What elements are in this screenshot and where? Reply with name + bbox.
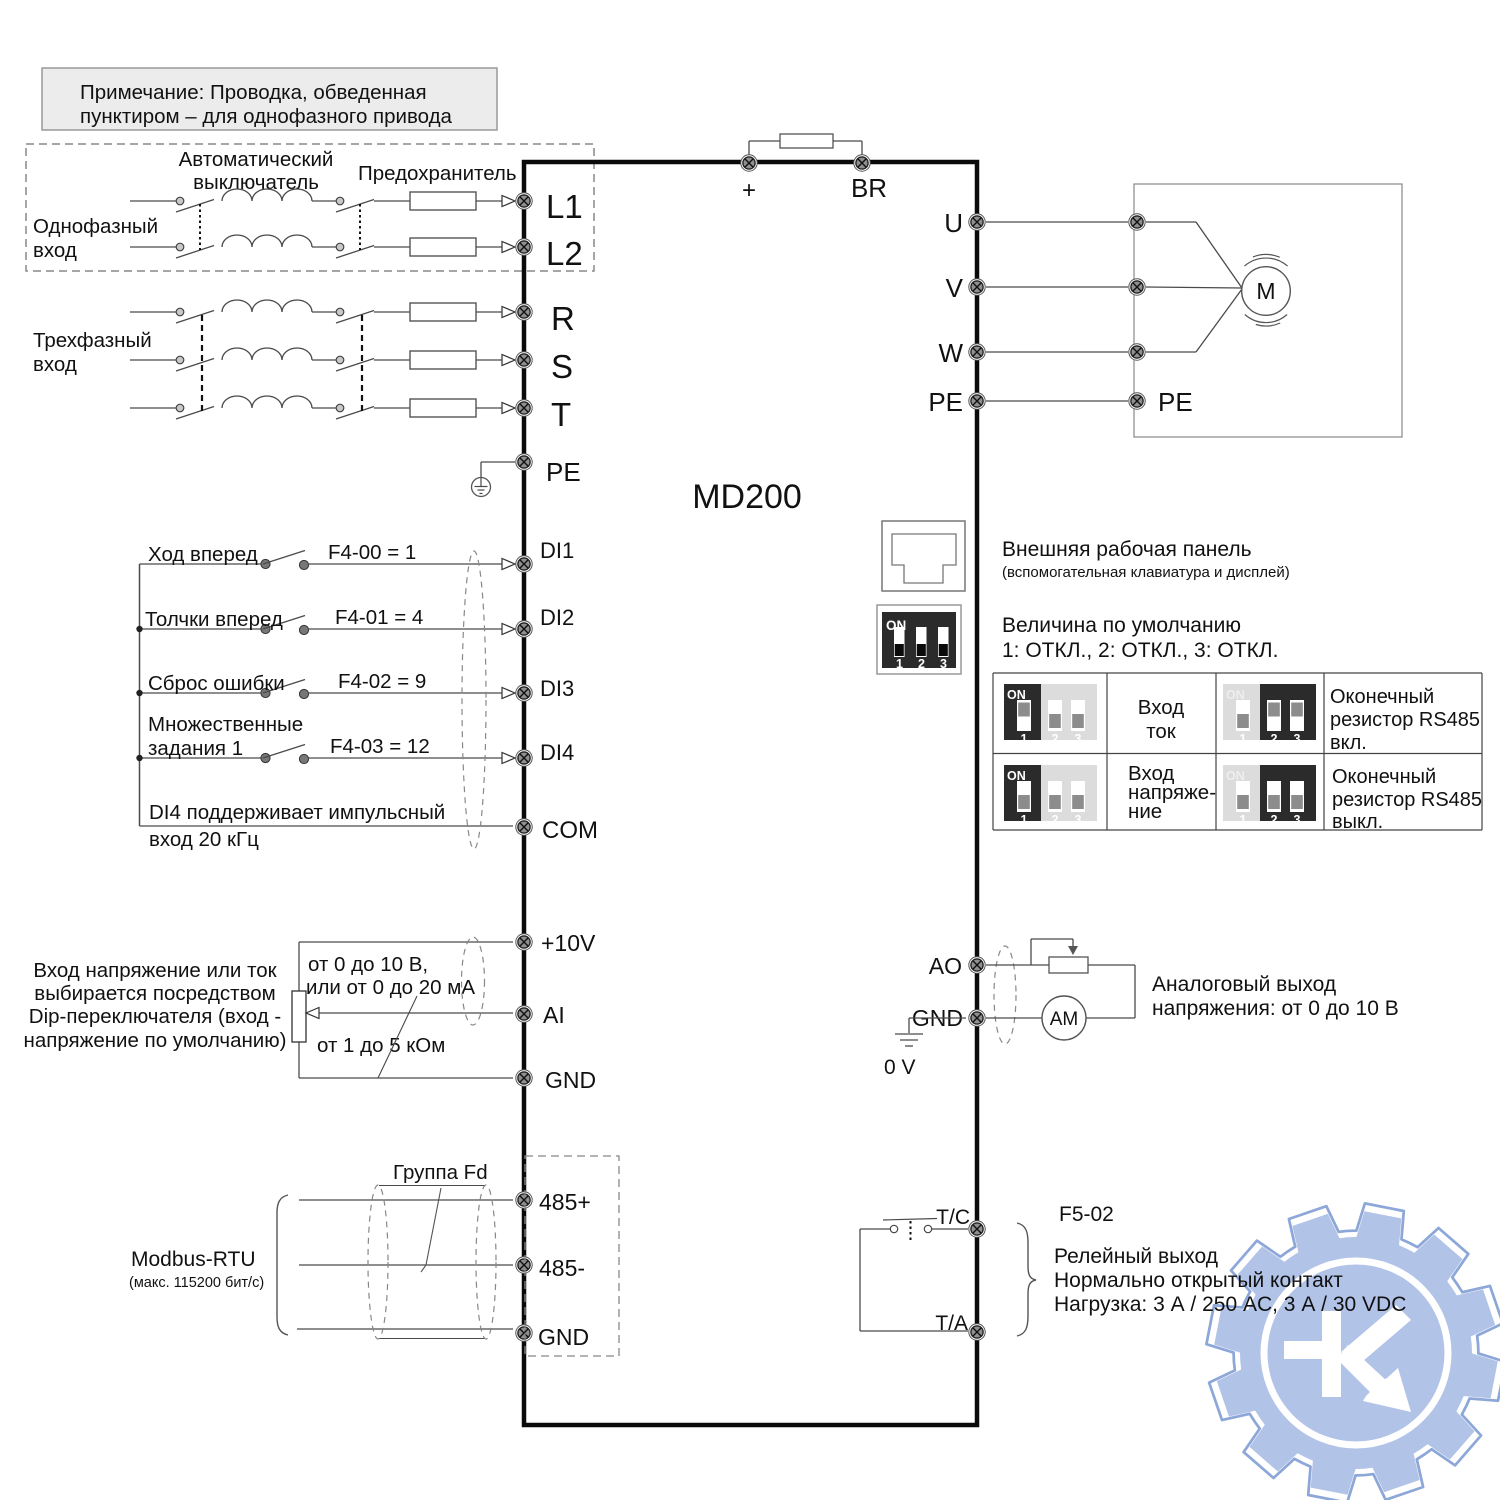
svg-text:2: 2 [918,657,925,671]
svg-text:DI1: DI1 [540,538,574,563]
svg-text:Аналоговый выход: Аналоговый выход [1152,973,1336,996]
svg-text:напряжение по умолчанию): напряжение по умолчанию) [24,1029,287,1052]
svg-text:GND: GND [538,1324,589,1350]
svg-text:PE: PE [1158,387,1193,417]
svg-text:Множественные: Множественные [148,713,303,736]
svg-text:+: + [742,177,756,204]
svg-text:Вход напряжение или ток: Вход напряжение или ток [33,959,277,982]
svg-text:Нормально открытый контакт: Нормально открытый контакт [1054,1269,1343,1292]
svg-text:напряжения: от 0 до 10 В: напряжения: от 0 до 10 В [1152,997,1399,1020]
svg-text:W: W [938,338,963,368]
svg-text:1: ОТКЛ., 2: ОТКЛ., 3: ОТКЛ.: 1: ОТКЛ., 2: ОТКЛ., 3: ОТКЛ. [1002,639,1278,662]
svg-text:Примечание: Проводка, обведенн: Примечание: Проводка, обведенная [80,81,427,104]
svg-text:Оконечный: Оконечный [1330,686,1434,708]
svg-text:M: M [1256,278,1275,304]
svg-text:PE: PE [546,457,581,487]
svg-text:0 V: 0 V [884,1056,916,1079]
svg-text:3: 3 [1294,813,1301,827]
svg-text:MD200: MD200 [692,478,802,516]
svg-text:T/C: T/C [936,1206,970,1229]
svg-text:2: 2 [1271,813,1278,827]
svg-text:от 0 до 10 В,: от 0 до 10 В, [308,953,428,976]
svg-text:T: T [551,396,571,433]
svg-text:3: 3 [1075,813,1082,827]
svg-text:DI3: DI3 [540,676,574,701]
svg-text:DI4 поддерживает импульсный: DI4 поддерживает импульсный [149,801,445,824]
svg-text:AI: AI [543,1002,565,1028]
svg-text:BR: BR [851,173,887,203]
svg-text:DI2: DI2 [540,605,574,630]
svg-text:1: 1 [1240,813,1247,827]
svg-text:DI4: DI4 [540,740,574,765]
svg-text:Внешняя рабочая панель: Внешняя рабочая панель [1002,538,1252,561]
svg-text:выключатель: выключатель [193,171,319,194]
svg-text:U: U [944,208,963,238]
svg-text:Оконечный: Оконечный [1332,766,1436,788]
svg-text:Однофазный: Однофазный [33,215,158,238]
svg-text:резистор RS485: резистор RS485 [1330,709,1480,731]
svg-text:Величина по умолчанию: Величина по умолчанию [1002,614,1241,637]
svg-text:ние: ние [1128,800,1162,823]
svg-text:3: 3 [940,657,947,671]
svg-text:Релейный выход: Релейный выход [1054,1245,1218,1268]
svg-text:V: V [946,273,964,303]
svg-text:ON: ON [1226,688,1245,702]
svg-text:2: 2 [1052,813,1059,827]
svg-text:ON: ON [1007,769,1026,783]
svg-text:AO: AO [929,953,962,979]
svg-text:PE: PE [928,387,963,417]
svg-text:T/A: T/A [935,1312,968,1335]
svg-text:Группа Fd: Группа Fd [393,1161,488,1184]
svg-text:выбирается посредством: выбирается посредством [34,982,275,1005]
svg-text:F4-00 = 1: F4-00 = 1 [328,541,416,564]
svg-text:F4-02 = 9: F4-02 = 9 [338,670,426,693]
svg-text:Предохранитель: Предохранитель [358,162,517,185]
svg-text:вход: вход [33,353,77,376]
svg-text:Dip-переключателя (вход -: Dip-переключателя (вход - [29,1005,281,1028]
svg-text:2: 2 [1052,732,1059,746]
svg-text:(макс. 115200 бит/с): (макс. 115200 бит/с) [129,1275,264,1291]
svg-text:ON: ON [1007,688,1026,702]
svg-text:3: 3 [1294,732,1301,746]
svg-text:вкл.: вкл. [1330,732,1367,754]
svg-text:1: 1 [1021,732,1028,746]
svg-text:ток: ток [1146,720,1177,743]
svg-text:Modbus-RTU: Modbus-RTU [131,1248,255,1271]
svg-text:Толчки вперед: Толчки вперед [145,608,283,631]
svg-text:Вход: Вход [1138,696,1184,719]
svg-text:или от 0 до 20 мА: или от 0 до 20 мА [306,976,475,999]
svg-text:485+: 485+ [539,1189,591,1215]
svg-text:S: S [551,348,573,385]
svg-text:вход: вход [33,239,77,262]
svg-text:+10V: +10V [541,930,596,956]
svg-text:1: 1 [1021,813,1028,827]
svg-text:пунктиром – для однофазного пр: пунктиром – для однофазного привода [80,105,453,128]
svg-text:485-: 485- [539,1255,585,1281]
svg-text:L1: L1 [546,188,583,225]
svg-text:2: 2 [1271,732,1278,746]
svg-text:вход 20 кГц: вход 20 кГц [149,828,259,851]
svg-text:Нагрузка: 3 А / 250 AC, 3 А /: Нагрузка: 3 А / 250 AC, 3 А / 30 VDC [1054,1293,1406,1316]
svg-text:F4-01 = 4: F4-01 = 4 [335,606,423,629]
svg-text:1: 1 [896,657,903,671]
svg-text:L2: L2 [546,235,583,272]
svg-text:Трехфазный: Трехфазный [33,329,152,352]
svg-text:R: R [551,300,575,337]
svg-text:Ход вперед: Ход вперед [148,543,258,566]
svg-text:1: 1 [1240,732,1247,746]
svg-text:Сброс ошибки: Сброс ошибки [148,672,285,695]
svg-text:3: 3 [1075,732,1082,746]
svg-text:F4-03 = 12: F4-03 = 12 [330,735,430,758]
svg-text:резистор RS485: резистор RS485 [1332,789,1482,811]
svg-text:от 1 до 5 кОм: от 1 до 5 кОм [317,1034,445,1057]
svg-text:(вспомогательная клавиатура и: (вспомогательная клавиатура и дисплей) [1002,564,1290,581]
svg-text:GND: GND [545,1067,596,1093]
svg-text:выкл.: выкл. [1332,811,1383,833]
svg-text:задания 1: задания 1 [148,737,243,760]
svg-text:ON: ON [1226,769,1245,783]
svg-text:F5-02: F5-02 [1059,1203,1114,1226]
svg-text:Автоматический: Автоматический [179,148,334,171]
svg-text:COM: COM [542,817,598,844]
svg-text:AM: AM [1050,1009,1079,1030]
